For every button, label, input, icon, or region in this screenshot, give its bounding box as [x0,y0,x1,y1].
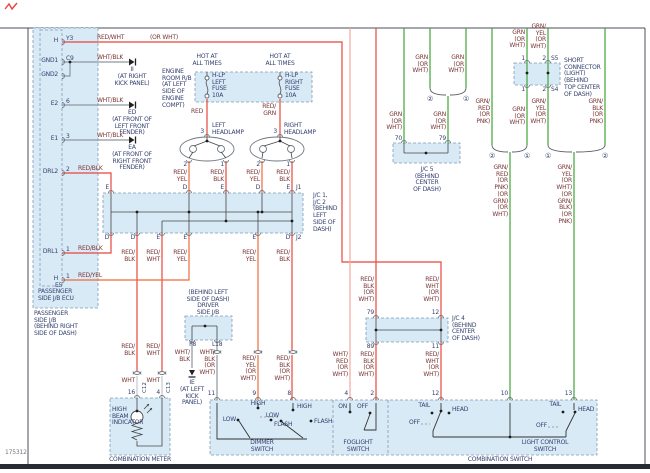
component-boxes [33,28,597,455]
wire-label-g527b: GRN (OR WHT) [509,107,525,127]
combination-meter-title-text: COMBINATION METER [107,456,173,463]
ecu-pin-gnd2: GND2 [41,72,58,79]
wire-label-redblk-drl1: RED/BLK [78,246,103,253]
switch-pin-11: 11 [208,391,215,398]
wire-label-redblk-drl2: RED/BLK [78,166,103,173]
wire-label-g527a: GRN (OR WHT) [509,30,525,50]
switch-pin-12: 12 [432,391,439,398]
ground-loc-ea: (AT FRONT OF RIGHT FRONT FENDER) [112,152,152,172]
combination-switch-title-text: COMBINATION SWITCH [466,456,535,463]
jc4-pin-11: 11 [432,344,439,351]
wiring-diagram: C12 C13 H Y3 RED/WHT (OR WHT) GND1 C9 WH… [0,0,650,473]
ecu-caption: PASSENGER SIDE J/B ECU [38,289,74,302]
meter-pin-4: 4 [156,390,160,397]
ecu-pin-id-6: 6 [66,99,70,106]
jc5-pin-79: 79 [439,136,446,143]
corner-mark-icon [5,3,17,9]
wire-label-whtblk2: WHT/BLK [97,98,123,105]
short-conn-bottom-2: 2 [542,87,546,94]
wire-label-f8: WHT/ BLK [175,350,190,363]
wire-label-o189: RED/ YEL [173,250,187,263]
jc12-bottom-pin-3: E [183,235,187,242]
short-conn-top-2: 2 [542,56,546,63]
jc12-bottom-pin-0: D [105,235,109,242]
wire-label-o162: RED/ WHT [146,250,160,263]
ecu-pin-drl1: DRL1 [43,249,58,256]
passenger-jb-caption: PASSENGER SIDE J/B (BEHIND RIGHT SIDE OF… [34,311,78,338]
ground-loc-ed: (AT FRONT OF LEFT FRONT FENDER) [112,117,152,137]
jc12-top-pin-4: E [286,185,290,192]
ecu-pin-drl2: DRL2 [43,169,58,176]
ecu-pin-id-drl1: 1 [66,247,70,254]
dimmer-high2: HIGH [297,404,312,411]
wire-label-w376b: RED/ BLK (OR WHT) [358,352,374,379]
ecu-pin-e1: E1 [51,136,58,143]
wire-label-redgrn: RED/ GRN [262,104,276,117]
wire-label-d258: RED/ YEL (OR WHT) [240,356,256,383]
short-conn-top-1: 1 [521,56,525,63]
wire-label-o137: RED/ BLK [121,250,135,263]
dimmer-flash1: FLASH [274,422,292,429]
ecu-pin-gnd1: GND1 [41,58,58,65]
wire-label-l18: WHT/ BLK (OR WHT) [199,350,215,377]
ecu-pin-id-c9: C9 [66,56,74,63]
wire-label-w376a: RED/ BLK (OR WHT) [358,277,374,304]
wire-label-d292: RED/ BLK (OR WHT) [274,356,290,383]
combination-switch-title: COMBINATION SWITCH [466,457,535,464]
ground-loc-ie: (AT LEFT KICK PANEL) [180,387,204,407]
headlamp-left-label: LEFT HEADLAMP [212,123,244,136]
jc12-top-pin-2: E [220,185,224,192]
wire-label-wht1: WHT [121,378,135,385]
splice-2c: ② [602,153,608,161]
wire-label-g430: GRN (OR WHT) [412,55,428,75]
dimmer-flash2: FLASH [314,419,332,426]
wire-label-w441a: RED/ WHT (OR WHT) [423,277,439,304]
wire-label-m162: RED/ WHT [146,344,160,357]
dimmer-switch-title: DIMMER SWITCH [250,440,274,453]
wire-label-g548b: GRN/ YEL (OR WHT) [530,99,546,126]
splice-1a: ① [463,96,469,104]
jc12-j1: J1 [296,185,301,192]
wire-label-m137: RED/ BLK [121,344,135,357]
wire-label-redwht: RED/WHT [97,35,124,42]
switch-pin-2: 2 [370,391,374,398]
wire-label-hl-r2: RED/ YEL [246,170,260,183]
foglight-switch-title: FOGLIGHT SWITCH [343,440,372,453]
wire-label-g404: GRN (OR WHT) [386,112,402,132]
wire-label-hl-r1: RED/ BLK [276,170,290,183]
headlamp-right-pin3: 3 [273,129,277,136]
jc12-bottom-pin-4: E [252,235,256,242]
ecu-pin-h-top: H [54,38,58,45]
jc12-j2: J2 [296,235,301,242]
jc12-bottom-pin-1: D [131,235,135,242]
wire-label-g605: GRN/ BLK (OR PNK) [588,99,603,126]
wire-label-orwht: (OR WHT) [150,35,178,42]
headlamp-left-pin2: 2 [183,162,187,169]
dimmer-low2: LOW [266,413,279,420]
wire-label-hl-l2: RED/ YEL [173,170,187,183]
fuse-right-label: H-LP RIGHT FUSE 10A [285,73,303,100]
jc4-pin-12: 12 [432,310,439,317]
jc12-bottom-pin-2: E [156,235,160,242]
hot-at-all-times-right: HOT AT ALL TIMES [265,54,294,67]
wire-label-hl-l1: RED/ BLK [210,170,224,183]
fog-on: ON [338,404,347,411]
wire-label-o292: RED/ BLK [276,250,290,263]
jc12-top-pin-0: E [105,185,109,192]
wire-label-red: RED [191,109,203,116]
lc-tail2: TAIL [549,402,561,409]
ecu-pin-e2: E2 [51,101,58,108]
wire-label-g466: GRN (OR WHT) [448,55,464,75]
lc-head1: HEAD [452,407,468,414]
wire-label-w441b: RED/ WHT (OR WHT) [423,352,439,379]
jc12-box [103,193,303,233]
lc-head2: HEAD [578,407,594,414]
fuse-left-label: H-LP LEFT FUSE 10A [212,73,227,100]
ground-loc-ii: (AT RIGHT KICK PANEL) [115,74,150,87]
engine-room-rb-caption: ENGINE ROOM R/B (AT LEFT SIDE OF ENGINE … [162,69,191,109]
light-control-switch-title: LIGHT CONTROL SWITCH [522,440,569,453]
ecu-pin-id-y3: Y3 [66,36,73,43]
fog-off: OFF [357,404,368,411]
wire-label-wht2: WHT [146,378,160,385]
switch-pin-9: 9 [252,391,256,398]
wire-label-o258: RED/ YEL [242,250,256,263]
lc-tail1: TAIL [418,403,430,410]
ecu-pin-id-drl2: 2 [66,167,70,174]
jc4-pin-89: 89 [367,344,374,351]
headlamp-right-pin1: 1 [286,162,290,169]
lc-off2: OFF [536,423,547,430]
jc5-pin-70: 70 [395,136,402,143]
switch-pin-4: 4 [344,391,348,398]
short-conn-s5: S5 [551,56,558,63]
wire-label-g574: GRN/ YEL (OR WHT) (OR GRN/ BLK) (OR PNK) [556,165,572,225]
jc5-caption: J/C 5 (BEHIND CENTER OF DASH) [413,167,441,194]
switch-pin-13: 13 [565,391,572,398]
dimmer-high1: HIGH [251,401,266,408]
lc-off1: OFF [409,420,420,427]
combination-meter-title: COMBINATION METER [107,457,173,464]
short-conn-s4: S4 [551,87,558,94]
splice-1c: ① [545,153,551,161]
diagram-number: 175312 [5,450,27,457]
switch-pin-8: 8 [287,391,291,398]
headlamp-right-pin2: 2 [256,162,260,169]
short-conn-bottom-1: 1 [521,87,525,94]
jc12-bottom-pin-5: D [286,235,290,242]
driver-jb-caption: (BEHIND LEFT SIDE OF DASH) DRIVER SIDE J… [187,290,230,317]
wire-label-g548a: GRN/ YEL (OR WHT) [530,24,546,51]
short-conn-caption: SHORT CONNECTOR (LIGHT) (BEHIND TOP CENT… [564,58,601,98]
wire-label-w350: WHT/ RED (OR WHT) [332,352,348,379]
wire-label-redyel-h: RED/YEL [78,273,102,280]
ecu-pin-id-h-bot: 1 [66,274,70,281]
hot-at-all-times-left: HOT AT ALL TIMES [192,54,221,67]
jc12-top-pin-1: D [183,185,187,192]
headlamp-left-pin1: 1 [220,162,224,169]
high-beam-indicator-label: HIGH BEAM INDICATOR [112,407,143,427]
jc4-caption: J/C 4 (BEHIND CENTER OF DASH) [452,316,480,343]
headlamp-right-label: RIGHT HEADLAMP [284,123,316,136]
wire-label-g492: GRN/ RED (OR PNK) [475,99,490,126]
ecu-pin-id-3: 3 [66,134,70,141]
bottom-bar [0,464,650,469]
meter-connector-c13: C13 [166,382,172,393]
splice-1b: ① [524,153,530,161]
switch-pin-10: 10 [501,391,508,398]
wire-label-g510: GRN/ RED (OR PNK) (OR GRN) (OR WHT) [492,165,508,219]
dimmer-low1: LOW [223,417,236,424]
driver-jb-pin-f8: F8 [189,342,196,349]
jc12-top-pin-3: D [256,185,260,192]
wire-label-g448: GRN (OR WHT) [430,112,446,132]
jc12-caption: J/C 1, J/C 2 (BEHIND LEFT SIDE OF DASH) [313,193,337,233]
headlamp-left-pin3: 3 [200,129,204,136]
headlamp-symbols [180,137,304,161]
meter-pin-16: 16 [128,390,135,397]
splice-2a: ② [427,96,433,104]
jc4-pin-79: 79 [367,310,374,317]
splice-2b: ② [489,153,495,161]
wire-label-whtblk1: WHT/BLK [97,55,123,62]
driver-jb-pin-l18: L18 [212,342,222,349]
short-connector-box [514,63,560,85]
